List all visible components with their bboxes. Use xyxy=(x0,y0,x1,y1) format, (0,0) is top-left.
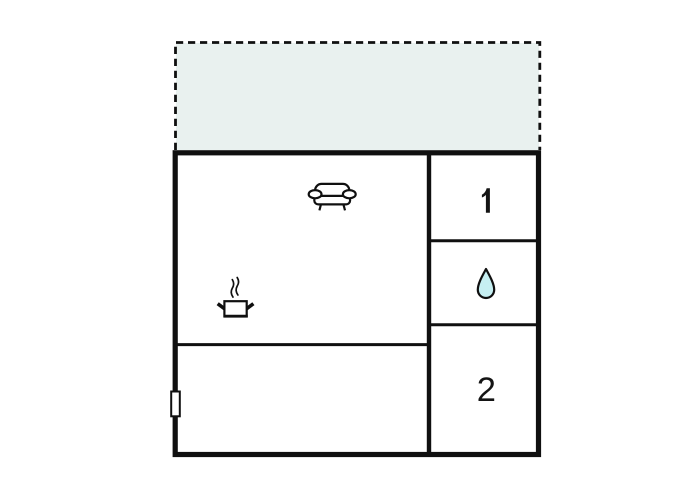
svg-text:2: 2 xyxy=(477,371,496,409)
